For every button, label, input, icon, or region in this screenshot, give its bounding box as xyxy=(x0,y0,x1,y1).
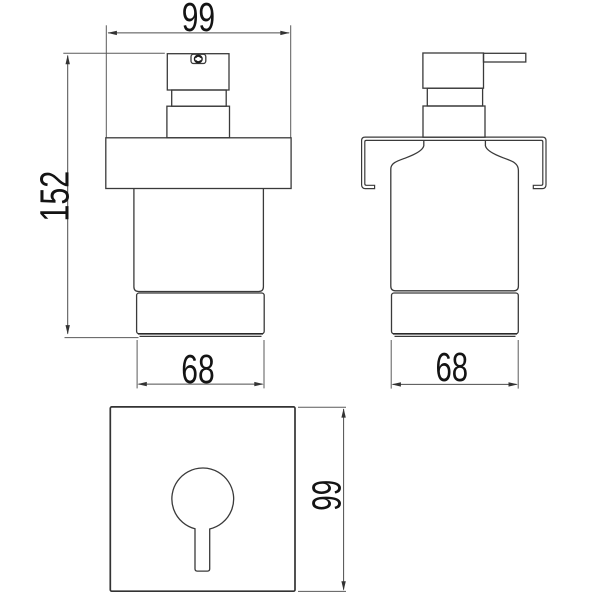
svg-text:68: 68 xyxy=(181,346,214,392)
svg-text:99: 99 xyxy=(182,0,215,40)
svg-text:68: 68 xyxy=(436,344,469,390)
svg-text:99: 99 xyxy=(304,480,350,511)
svg-text:152: 152 xyxy=(32,171,78,222)
